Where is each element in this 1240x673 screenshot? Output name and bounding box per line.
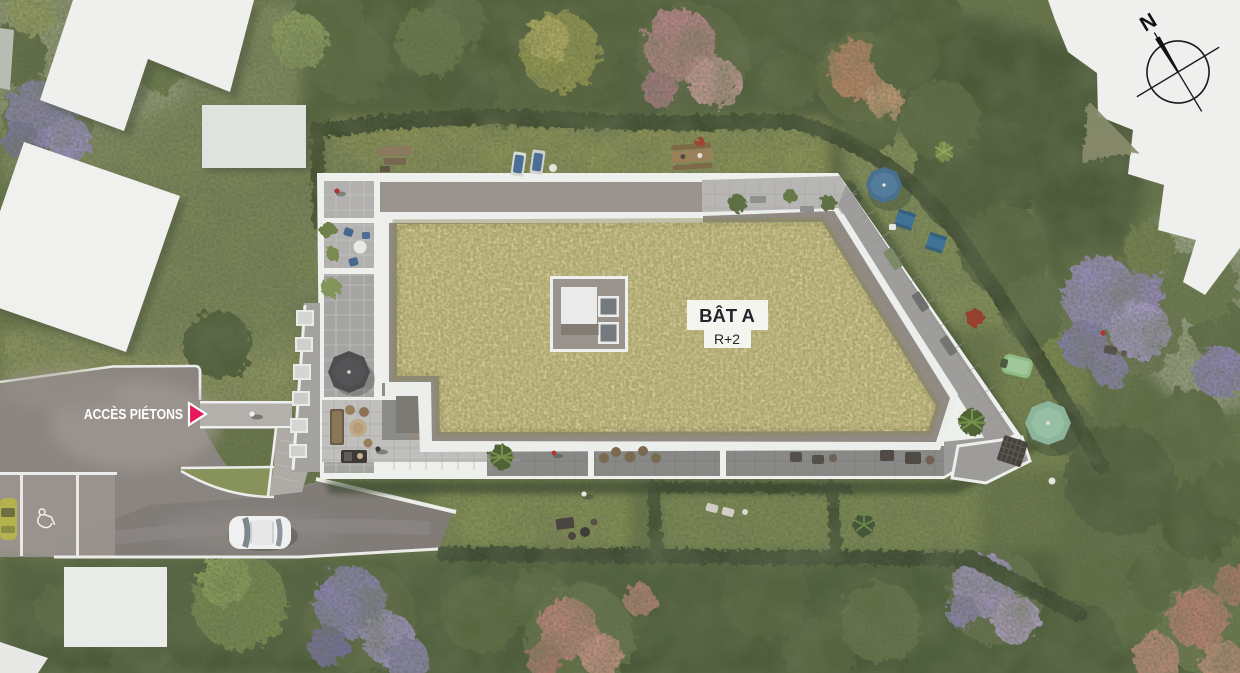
svg-text:R+2: R+2 bbox=[714, 331, 740, 347]
svg-text:ACCÈS PIÉTONS: ACCÈS PIÉTONS bbox=[84, 406, 183, 422]
svg-text:BÂT A: BÂT A bbox=[699, 305, 755, 326]
